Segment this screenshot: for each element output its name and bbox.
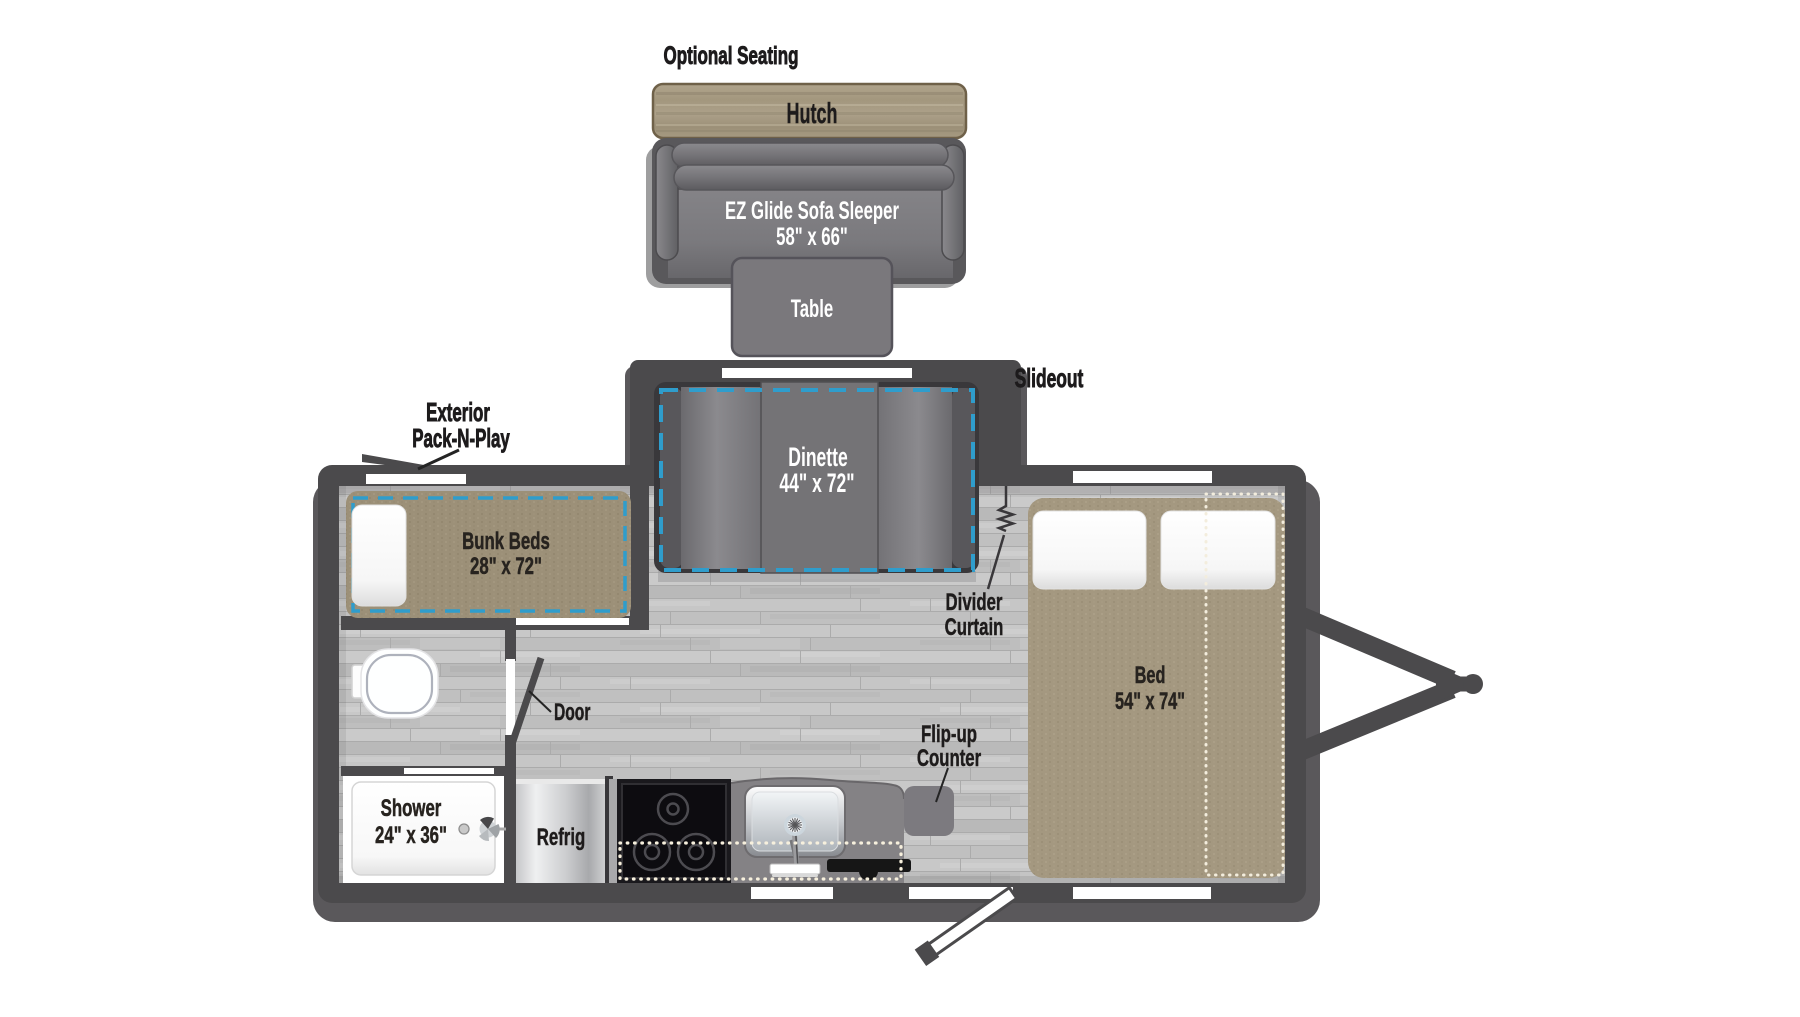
svg-text:Optional Seating: Optional Seating [664, 42, 799, 70]
svg-text:24" x 36": 24" x 36" [375, 822, 447, 849]
svg-text:Bed: Bed [1135, 662, 1166, 689]
svg-text:Hutch: Hutch [787, 98, 838, 130]
svg-text:EZ Glide Sofa Sleeper: EZ Glide Sofa Sleeper [725, 197, 899, 225]
svg-text:Table: Table [791, 295, 834, 323]
svg-text:Flip-up: Flip-up [921, 721, 977, 748]
svg-text:Divider: Divider [946, 589, 1003, 616]
svg-text:Slideout: Slideout [1015, 364, 1084, 393]
svg-text:Door: Door [554, 700, 590, 726]
svg-text:58" x 66": 58" x 66" [776, 223, 848, 251]
svg-text:54" x 74": 54" x 74" [1115, 688, 1185, 715]
svg-text:28" x 72": 28" x 72" [470, 553, 542, 580]
svg-text:Refrig: Refrig [537, 824, 586, 851]
svg-text:Curtain: Curtain [945, 614, 1004, 641]
svg-text:Shower: Shower [381, 795, 442, 822]
svg-text:Counter: Counter [917, 745, 981, 772]
svg-text:44" x 72": 44" x 72" [779, 467, 854, 498]
svg-text:Bunk Beds: Bunk Beds [462, 528, 550, 555]
svg-text:Pack-N-Play: Pack-N-Play [412, 423, 510, 453]
